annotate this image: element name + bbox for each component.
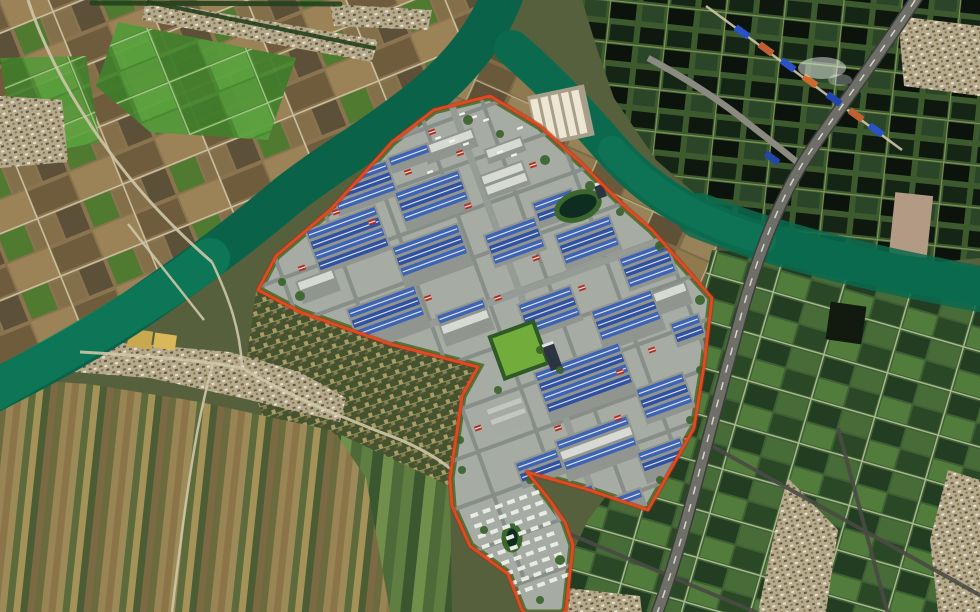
park-tree-11: [494, 386, 502, 394]
field-yellow-2: [153, 333, 177, 351]
cloud-1: [828, 74, 852, 86]
park-tree-15: [555, 555, 565, 565]
fishpond-dark: [826, 302, 867, 345]
park-tree-5: [278, 278, 286, 286]
park-tree-8: [695, 295, 705, 305]
park-tree-17: [480, 526, 488, 534]
park-tree-13: [458, 466, 466, 474]
park-tree-4: [295, 291, 305, 301]
park-tree-6: [616, 208, 624, 216]
park-tree-10: [556, 366, 564, 374]
village-ne-corner: [898, 16, 980, 96]
park-tree-0: [463, 115, 473, 125]
field-pink-ne: [889, 192, 933, 258]
park-tree-16: [536, 596, 544, 604]
treeline-top-edge: [92, 3, 340, 4]
aerial-masterplan-scene: [0, 0, 980, 612]
satellite-map-viewport: [0, 0, 980, 612]
village-left-edge: [0, 96, 68, 168]
park-tree-1: [496, 130, 504, 138]
park-tree-2: [540, 155, 550, 165]
park-tree-3: [585, 181, 595, 191]
park-tree-9: [536, 346, 544, 354]
